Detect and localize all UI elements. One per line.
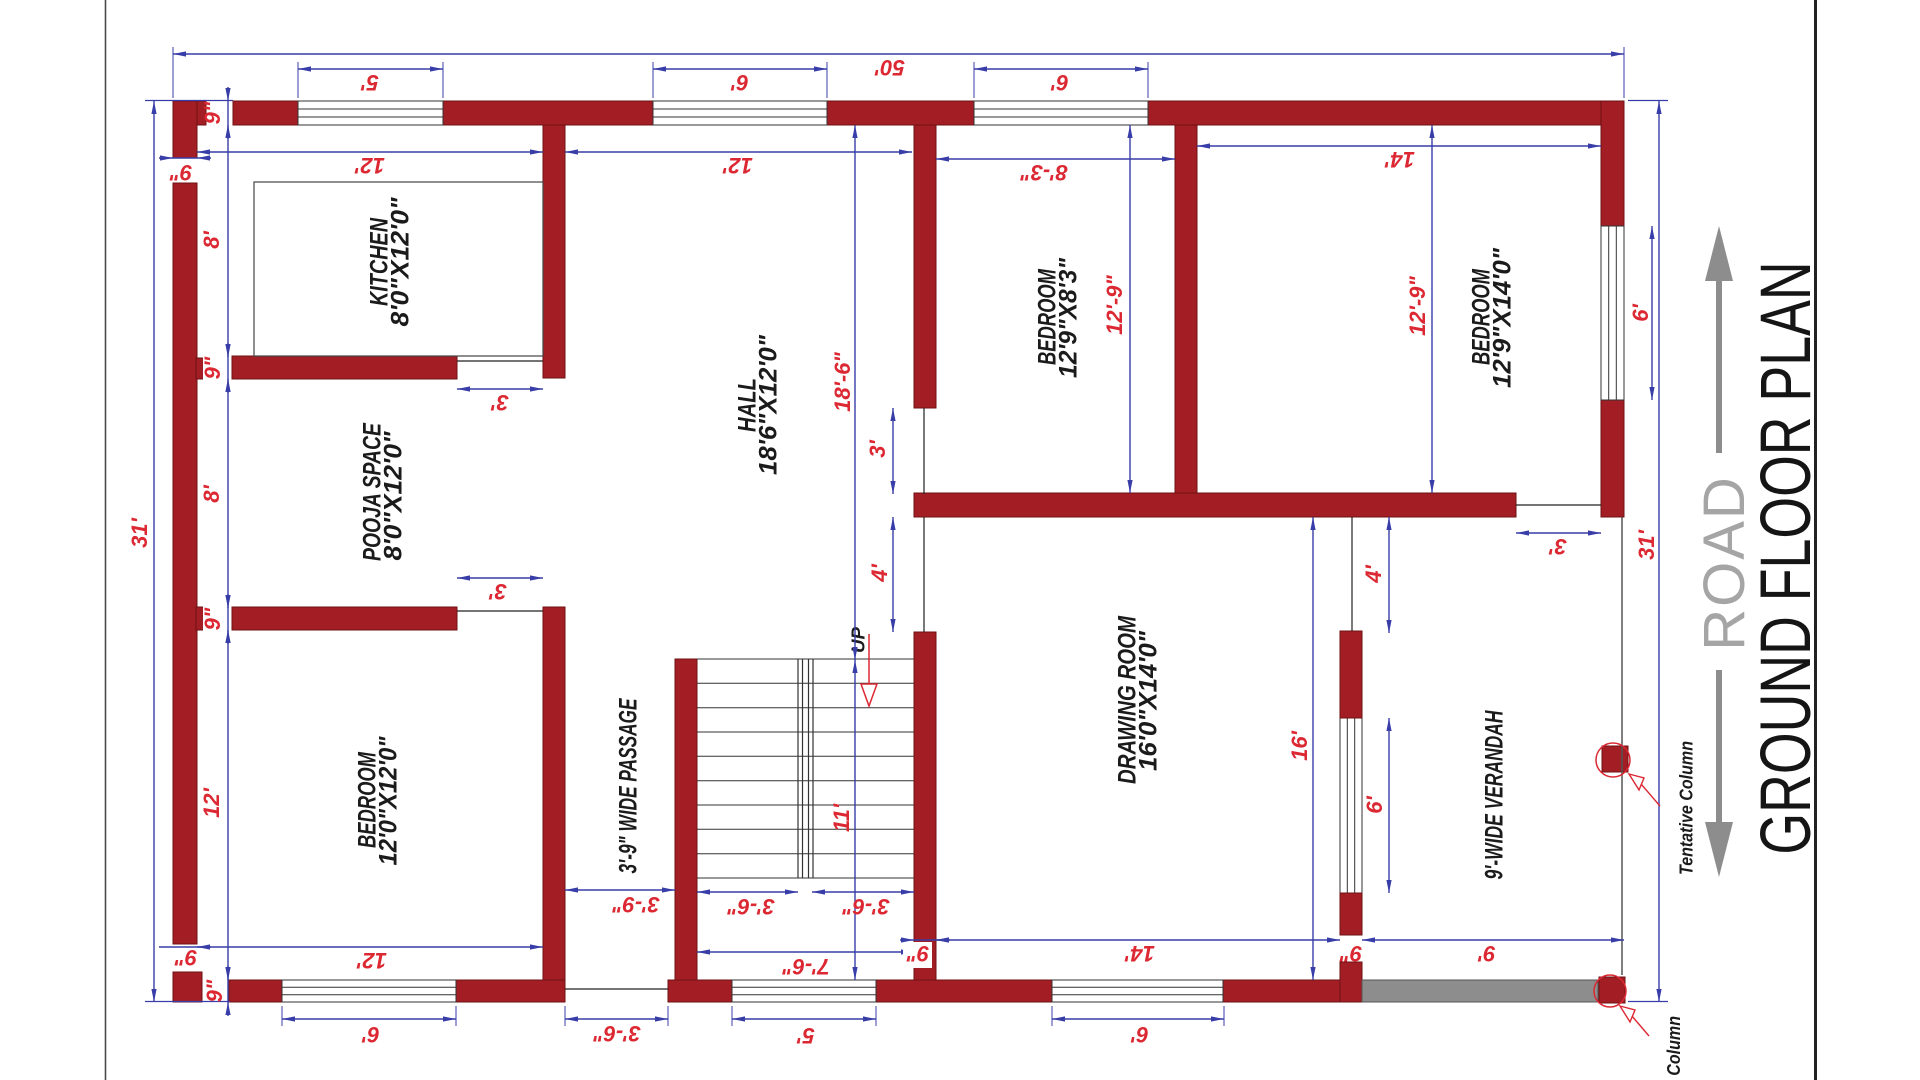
svg-text:12'-9": 12'-9": [1405, 276, 1430, 336]
svg-text:12': 12': [199, 787, 224, 817]
svg-text:6': 6': [361, 1022, 379, 1047]
svg-text:14': 14': [1124, 941, 1154, 966]
svg-text:4': 4': [1361, 564, 1386, 583]
svg-text:6': 6': [1628, 303, 1653, 321]
svg-text:12'-9": 12'-9": [1102, 275, 1127, 335]
svg-text:9": 9": [1339, 941, 1362, 966]
svg-text:5': 5': [796, 1023, 814, 1048]
svg-text:3'-6": 3'-6": [842, 894, 890, 919]
svg-text:16'0"X14'0": 16'0"X14'0": [1134, 630, 1162, 771]
svg-text:Tentative Column: Tentative Column: [1677, 741, 1697, 875]
svg-text:6': 6': [1130, 1022, 1148, 1047]
svg-text:9'-WIDE VERANDAH: 9'-WIDE VERANDAH: [1480, 710, 1508, 880]
svg-text:8'0"X12'0": 8'0"X12'0": [379, 430, 407, 560]
svg-text:3'-9": 3'-9": [612, 892, 660, 917]
svg-text:8'0"X12'0": 8'0"X12'0": [386, 196, 414, 326]
svg-text:UP: UP: [849, 626, 869, 653]
svg-text:11': 11': [829, 803, 854, 832]
svg-text:18'-6": 18'-6": [830, 352, 855, 412]
svg-text:12'0"X12'0": 12'0"X12'0": [374, 735, 402, 865]
svg-text:3'-6": 3'-6": [727, 894, 775, 919]
svg-text:4': 4': [867, 563, 892, 582]
svg-text:50': 50': [874, 55, 904, 80]
svg-text:12'9"X8'3": 12'9"X8'3": [1054, 257, 1082, 378]
svg-text:9": 9": [202, 979, 227, 1002]
svg-text:3': 3': [1548, 534, 1566, 559]
svg-text:31': 31': [127, 517, 152, 547]
svg-text:3': 3': [488, 579, 506, 604]
svg-text:8': 8': [199, 484, 224, 502]
svg-text:16': 16': [1287, 730, 1312, 760]
svg-text:3': 3': [490, 390, 508, 415]
svg-text:5': 5': [360, 70, 378, 95]
svg-text:12': 12': [356, 948, 386, 973]
svg-text:3': 3': [865, 439, 890, 457]
svg-text:GROUND FLOOR PLAN: GROUND FLOOR PLAN: [1747, 261, 1826, 854]
svg-text:3'-6": 3'-6": [593, 1021, 641, 1046]
svg-text:8'-3": 8'-3": [1020, 160, 1068, 185]
svg-text:12': 12': [722, 153, 752, 178]
svg-text:6': 6': [1050, 70, 1068, 95]
svg-text:9": 9": [906, 941, 929, 966]
svg-text:Tentative Column: Tentative Column: [1664, 1016, 1684, 1080]
svg-text:31': 31': [1634, 529, 1659, 559]
svg-text:9": 9": [174, 945, 197, 970]
svg-text:7'-6": 7'-6": [782, 954, 830, 979]
svg-text:9": 9": [200, 356, 225, 379]
svg-text:12'9"X14'0": 12'9"X14'0": [1488, 247, 1516, 388]
svg-text:14': 14': [1384, 147, 1414, 172]
svg-text:6': 6': [1362, 795, 1387, 813]
svg-text:18'6"X12'0": 18'6"X12'0": [754, 334, 782, 475]
svg-text:9': 9': [1477, 941, 1495, 966]
svg-text:6': 6': [730, 70, 748, 95]
svg-text:12': 12': [354, 153, 384, 178]
svg-text:3'-9" WIDE PASSAGE: 3'-9" WIDE PASSAGE: [614, 698, 642, 874]
svg-text:8': 8': [199, 230, 224, 248]
svg-text:9": 9": [200, 101, 225, 124]
svg-text:9": 9": [169, 160, 192, 185]
svg-text:9": 9": [200, 607, 225, 630]
